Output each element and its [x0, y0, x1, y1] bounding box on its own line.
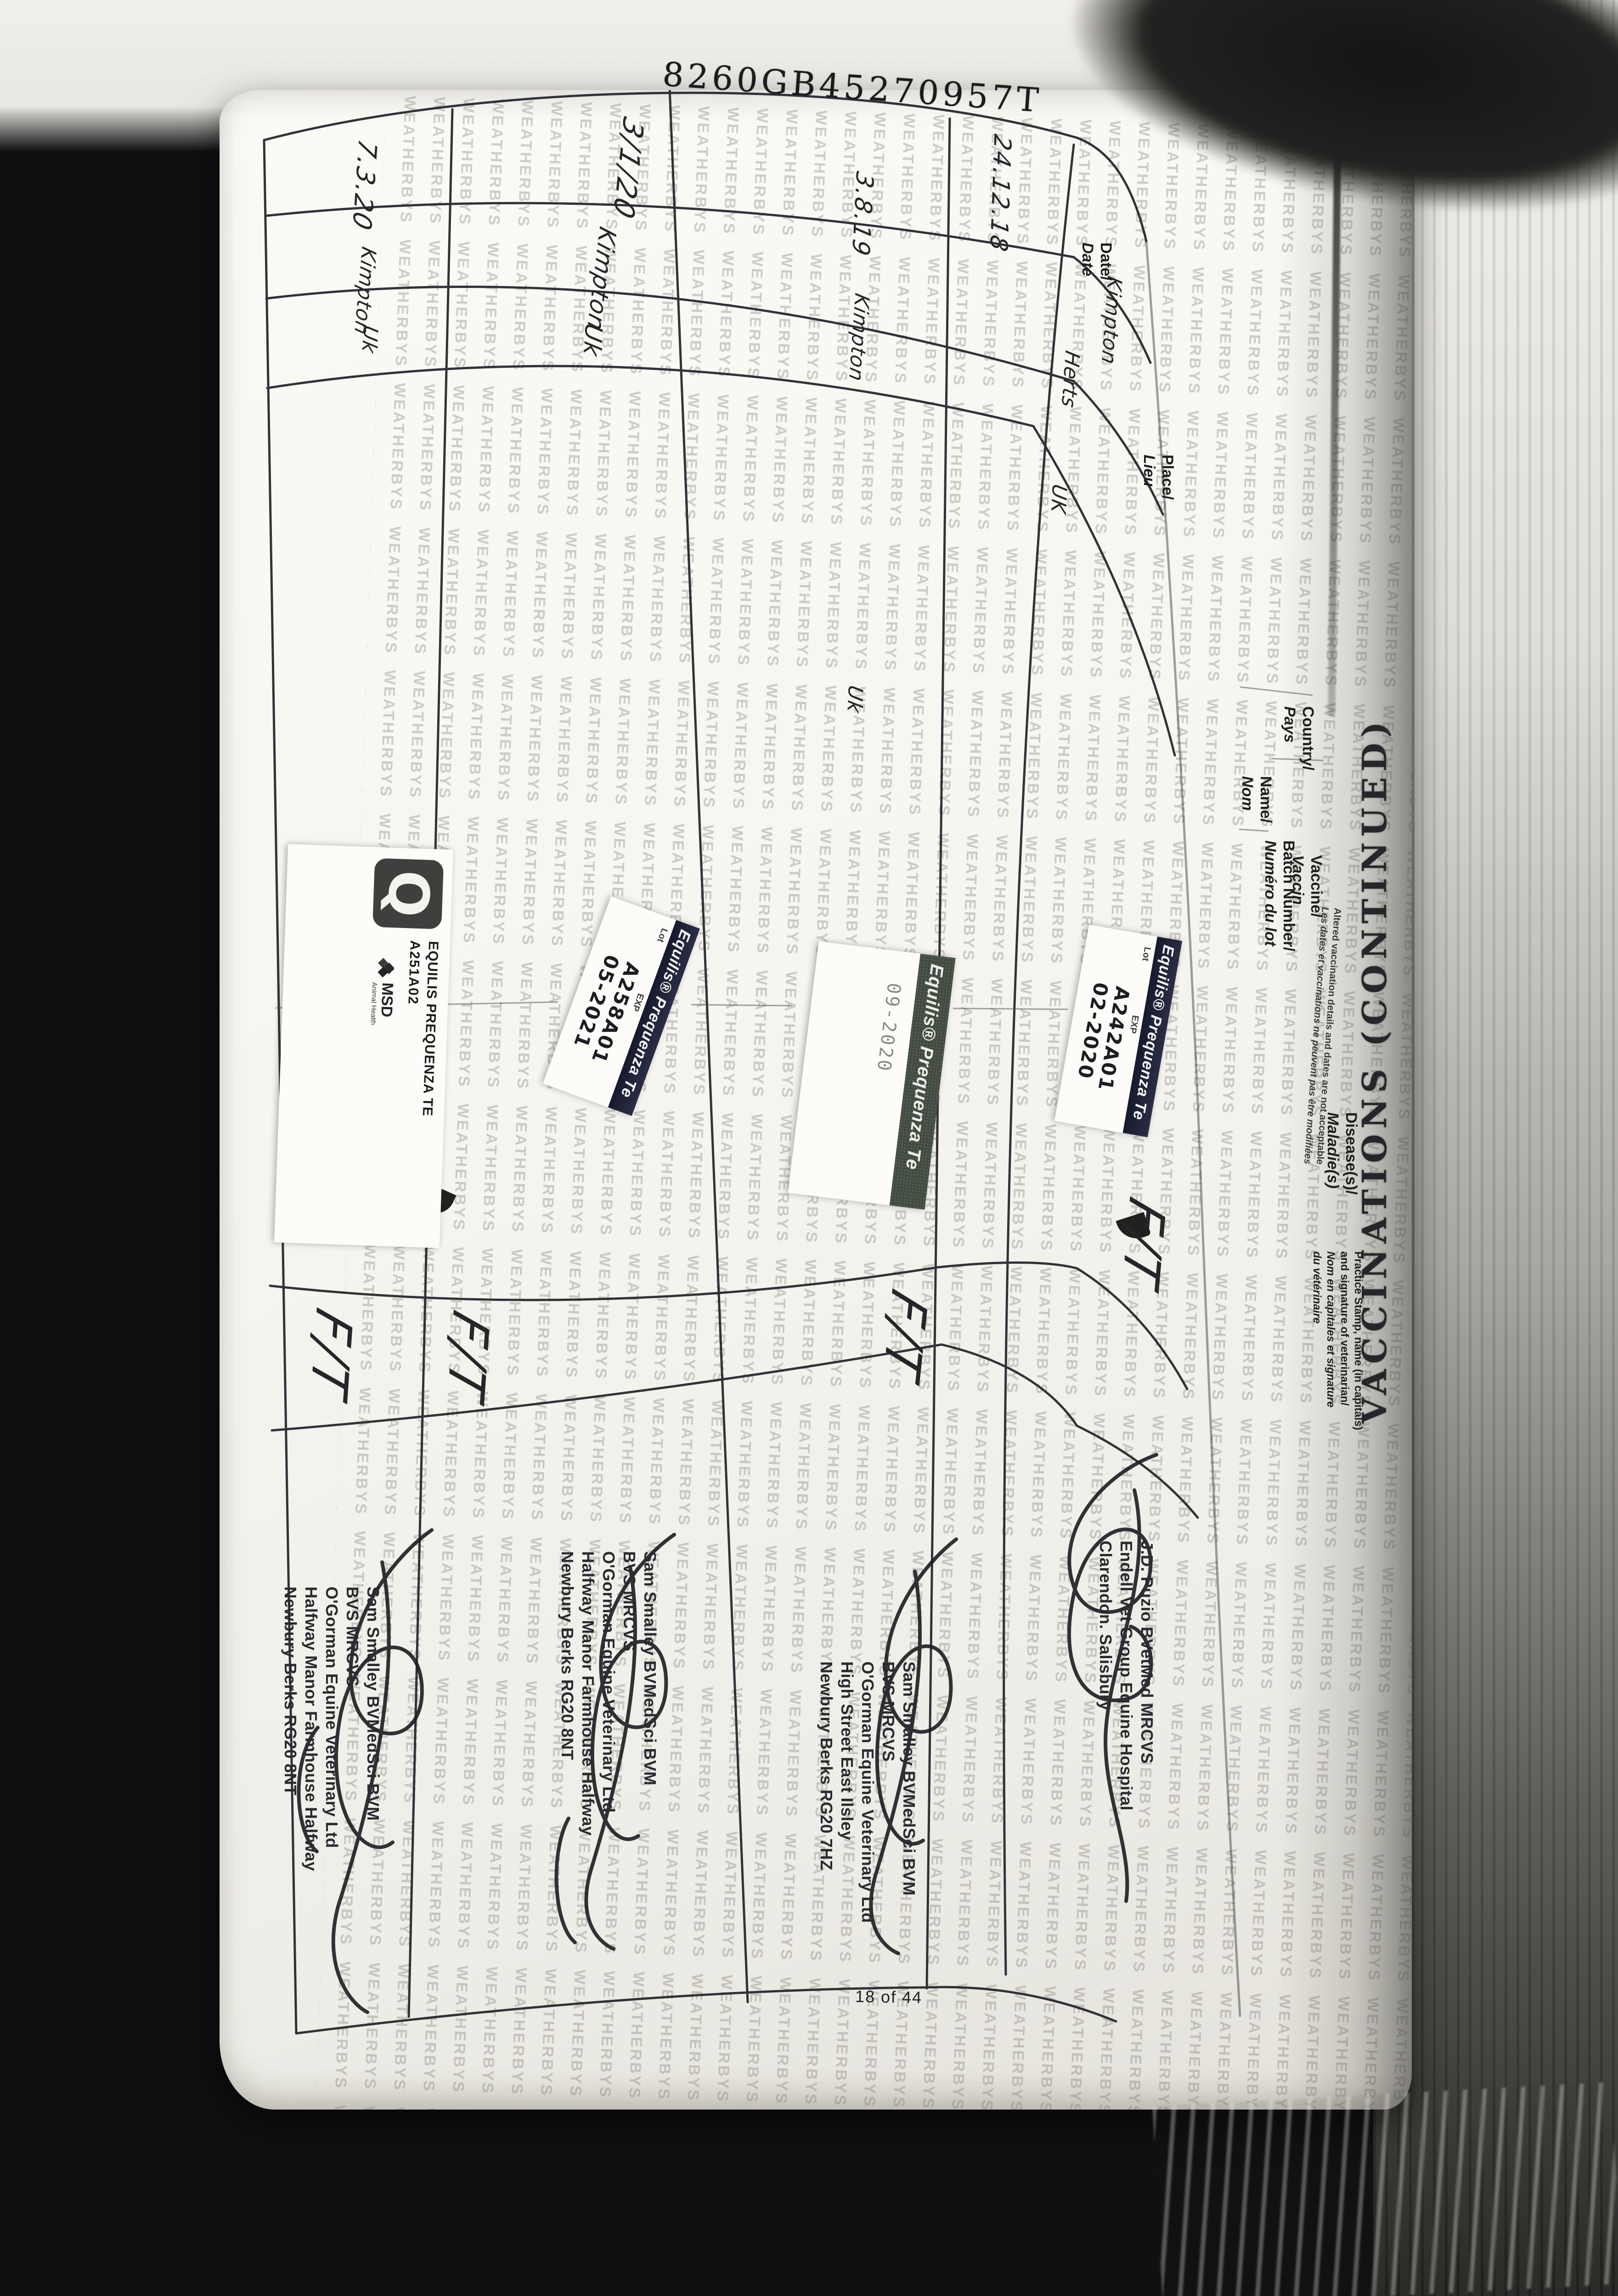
vaccine-sticker-msd: Q EQUILIS PREQUENZA TE A251A02 MSD Anima… — [274, 844, 453, 1248]
header-batch-number: Batch Number/ Numéro du lot — [1261, 840, 1298, 951]
sticker-product-name: EQUILIS PREQUENZA TE — [419, 941, 441, 1117]
q-logo-icon: Q — [372, 858, 444, 929]
entry-country: UK — [1046, 482, 1071, 516]
practice-stamp-text: Sam Smalley BVMedSci BVM BVS MRCVS O'Gor… — [557, 1551, 660, 1836]
practice-stamp-text: Sam Smalley BVMedSci BVM BVS MRCVS O'Gor… — [816, 1661, 919, 1923]
spine-fold-shadow — [1277, 90, 1415, 2110]
page-number: 18 of 44 — [855, 1987, 923, 2008]
entry-country: Uk — [357, 323, 382, 355]
entry-date: 7.3.20 — [346, 136, 382, 235]
header-practice-stamp: Practice Stamp, name (in capitals) and s… — [1310, 1251, 1365, 1430]
entry-country: Uk — [842, 683, 867, 715]
header-place: Place/ Lieu — [1140, 455, 1177, 500]
msd-logo-icon — [373, 957, 395, 979]
practice-stamp-text: J.D. Puzio BVetMed MRCVS Endell Vet Grou… — [1095, 1541, 1157, 1811]
photographed-passport-page: WEATHERBYS WEATHERBYS WEATHERBYS WEATHER… — [0, 0, 1618, 2296]
header-date: Date/ Date — [1078, 242, 1115, 281]
header-name: Name/ Nom — [1238, 776, 1275, 823]
practice-stamp-text: Sam Smalley BVMedSci BVM BVS MRCVS O'Gor… — [280, 1587, 383, 1871]
header-disease: Disease(s)/ Maladie(s) — [1324, 1112, 1360, 1195]
header-country: Country/ Pays — [1280, 706, 1317, 771]
entry-date: 3.8.19 — [846, 169, 878, 259]
bottom-corner-page-edges — [1152, 2082, 1618, 2296]
msd-label: MSD — [377, 982, 396, 1026]
entry-date: 24.12.18 — [984, 132, 1016, 255]
msd-sublabel: Animal Health — [369, 982, 378, 1025]
lot-label: Lot — [1139, 946, 1152, 962]
sticker-batch-number: A251A02 — [401, 940, 423, 1116]
entry-place-line2: Herts — [1057, 349, 1084, 410]
entry-country: Uk — [578, 321, 607, 359]
